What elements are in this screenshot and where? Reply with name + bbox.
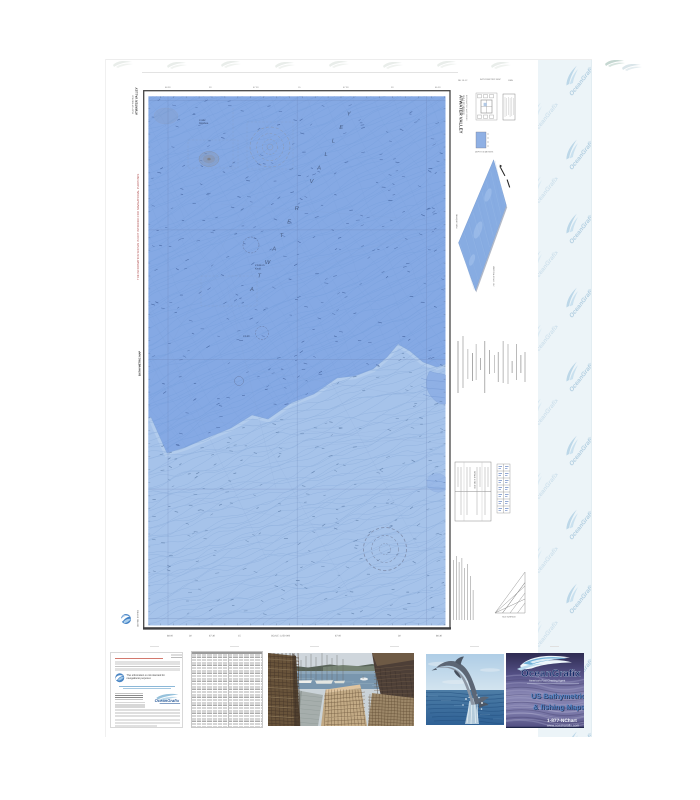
svg-text:OceanGrafix: OceanGrafix (538, 397, 561, 431)
svg-text:A: A (316, 166, 321, 172)
svg-text:US Bathymetric: US Bathymetric (531, 692, 584, 701)
svg-text:30: 30 (209, 86, 212, 89)
svg-text:W: W (265, 260, 271, 266)
svg-text:88 00: 88 00 (167, 635, 174, 638)
svg-text:T: T (258, 274, 262, 280)
svg-text:OBLIQUE VIEW: OBLIQUE VIEW (455, 214, 458, 229)
svg-text:OceanGrafix: OceanGrafix (568, 730, 592, 737)
svg-text:OceanGrafix: OceanGrafix (538, 101, 561, 135)
svg-text:Sigsbee: Sigsbee (199, 122, 209, 125)
svg-text:DEPTH IN METERS: DEPTH IN METERS (475, 151, 494, 154)
svg-text:ATWATER VALLEY: ATWATER VALLEY (135, 86, 139, 115)
svg-text:3 120: 3 120 (243, 335, 250, 338)
svg-text:UNITED STATES: UNITED STATES (137, 610, 140, 627)
svg-text:88 00: 88 00 (165, 86, 171, 89)
svg-text:America's First Charting Agent: America's First Charting Agent (529, 680, 565, 683)
svg-text:SCALE 1:250 000: SCALE 1:250 000 (271, 635, 291, 638)
svg-text:30: 30 (189, 635, 192, 638)
svg-text:BATHYMETRIC MAP: BATHYMETRIC MAP (480, 78, 501, 81)
svg-text:OceanGrafix: OceanGrafix (521, 669, 581, 680)
svg-text:T: T (280, 233, 284, 239)
svg-text:86 30: 86 30 (436, 635, 443, 638)
svg-text:SEA SURFACE: SEA SURFACE (502, 616, 517, 619)
svg-text:VERTICAL EXAG. 10X: VERTICAL EXAG. 10X (492, 266, 495, 287)
svg-text:E: E (287, 220, 291, 226)
svg-text:L: L (325, 152, 328, 158)
svg-text:OceanGrafix: OceanGrafix (538, 249, 561, 283)
svg-text:R: R (295, 206, 299, 212)
svg-text:Knoll: Knoll (255, 267, 261, 270)
svg-text:BATHYMETRIC MAP SERIES: BATHYMETRIC MAP SERIES (465, 95, 468, 121)
svg-text:OceanGrafix: OceanGrafix (538, 323, 561, 357)
svg-text:OceanGrafix: OceanGrafix (538, 619, 561, 653)
svg-text:87 00: 87 00 (335, 635, 342, 638)
svg-text:15: 15 (298, 86, 301, 89)
svg-text:30: 30 (398, 635, 401, 638)
svg-text:OceanGrafix: OceanGrafix (538, 175, 561, 209)
svg-text:87 30: 87 30 (209, 635, 216, 638)
svg-text:A: A (249, 287, 254, 293)
svg-text:& fishing Maps: & fishing Maps (533, 702, 584, 711)
svg-text:GULF OF MEXICO: GULF OF MEXICO (132, 95, 135, 114)
svg-text:15: 15 (238, 635, 241, 638)
svg-text:30: 30 (391, 86, 394, 89)
svg-text:E: E (339, 125, 343, 131)
svg-text:87 30: 87 30 (253, 86, 259, 89)
svg-text:NH 15-12: NH 15-12 (458, 79, 468, 82)
svg-text:GULF OF MEXICO: GULF OF MEXICO (462, 95, 465, 115)
svg-text:SCALE 1:250 000: SCALE 1:250 000 (473, 471, 476, 489)
svg-text:THE INFORMATION SHOWN IS NOT I: THE INFORMATION SHOWN IS NOT INTENDED FO… (136, 174, 140, 280)
svg-text:1985: 1985 (508, 79, 514, 82)
svg-text:86 30: 86 30 (435, 86, 441, 89)
svg-text:BATHYMETRIC MAP: BATHYMETRIC MAP (139, 351, 142, 376)
svg-text:OceanGrafix: OceanGrafix (538, 471, 561, 505)
svg-text:A: A (271, 247, 276, 253)
svg-text:87 00: 87 00 (343, 86, 349, 89)
svg-text:OceanGrafix: OceanGrafix (155, 699, 180, 704)
svg-text:OceanGrafix: OceanGrafix (538, 545, 561, 579)
svg-text:L: L (332, 139, 335, 145)
